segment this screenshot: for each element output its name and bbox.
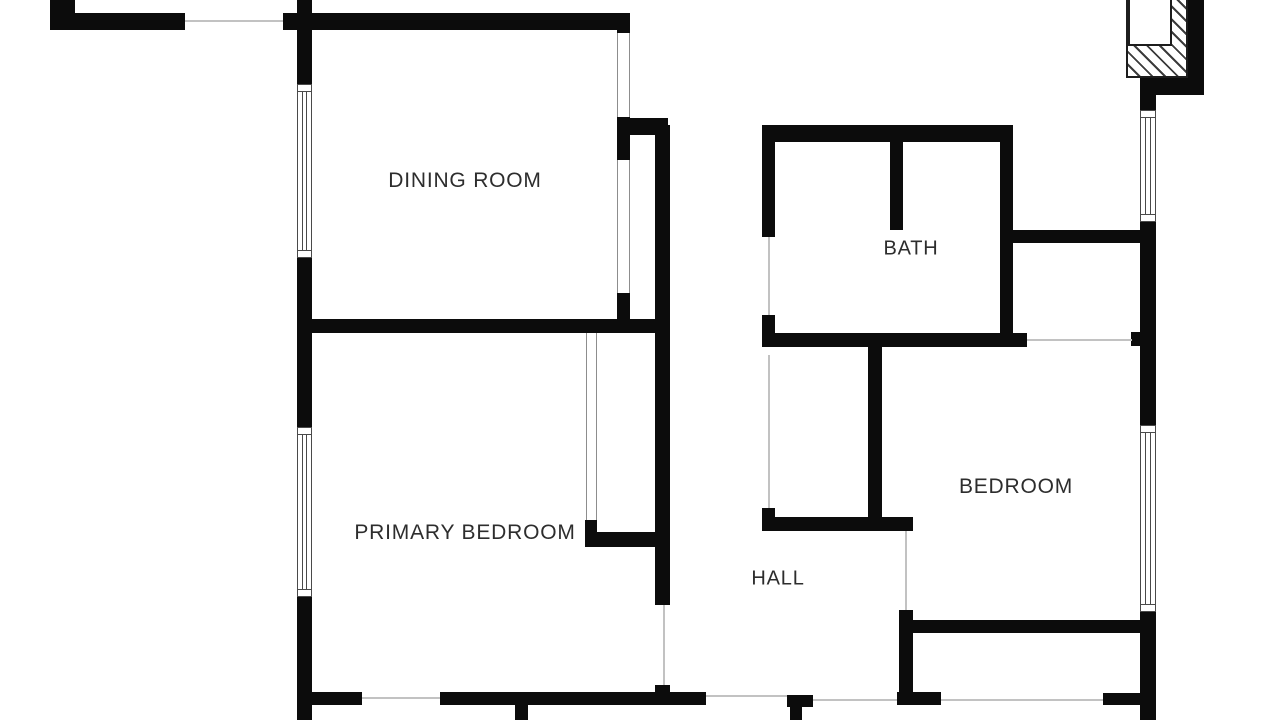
wall-segment (617, 117, 630, 160)
wall-segment (1140, 95, 1156, 110)
wall-segment (60, 13, 185, 30)
window-cap (1141, 604, 1155, 605)
wall-segment (762, 125, 775, 237)
wall-segment (762, 517, 913, 531)
opening-threshold-line (663, 605, 665, 685)
wall-segment (787, 695, 813, 707)
wall-segment (790, 707, 802, 720)
window-cap (298, 589, 311, 590)
wall-segment (1140, 222, 1156, 425)
wall-segment (868, 345, 882, 517)
window-pane (302, 435, 307, 589)
wall-segment (890, 135, 903, 230)
wall-segment (1103, 693, 1142, 705)
wall-segment (297, 319, 670, 333)
window-cap (1141, 117, 1155, 118)
wall-segment (283, 13, 630, 30)
room-label-hall: HALL (751, 568, 804, 591)
window-primary-left (297, 427, 312, 597)
wall-segment (585, 532, 670, 547)
room-label-bedroom: BEDROOM (959, 475, 1073, 499)
wall-opening (617, 33, 630, 117)
room-label-dining-room: DINING ROOM (388, 169, 541, 193)
fireplace-inset (1128, 0, 1172, 46)
window-cap (1141, 214, 1155, 215)
wall-segment (515, 703, 528, 720)
wall-segment (297, 257, 312, 427)
wall-segment (617, 13, 630, 33)
window-right-upper (1140, 110, 1156, 222)
opening-threshold-line (362, 697, 440, 699)
opening-threshold-line (813, 699, 897, 701)
window-dining-left (297, 84, 312, 258)
wall-opening (617, 160, 630, 293)
wall-segment (1140, 77, 1204, 95)
opening-threshold-line (706, 695, 787, 697)
wall-segment (897, 692, 941, 705)
window-cap (298, 91, 311, 92)
opening-threshold-line (1027, 339, 1132, 341)
opening-threshold-line (768, 237, 770, 315)
window-cap (298, 250, 311, 251)
wall-segment (617, 293, 630, 320)
wall-segment (310, 692, 362, 705)
window-pane (1145, 433, 1151, 604)
opening-threshold-line (905, 531, 907, 610)
wall-segment (762, 125, 1012, 142)
wall-segment (899, 620, 1155, 633)
opening-threshold-line (768, 355, 770, 508)
opening-threshold-line (941, 699, 1103, 701)
window-cap (298, 434, 311, 435)
wall-segment (1140, 612, 1156, 720)
wall-opening (586, 333, 597, 520)
window-pane (1145, 118, 1151, 214)
wall-segment (1131, 332, 1140, 346)
window-cap (1141, 432, 1155, 433)
window-pane (302, 92, 307, 250)
room-label-bath: BATH (883, 238, 938, 261)
wall-segment (1012, 230, 1140, 243)
wall-segment (762, 333, 1027, 347)
room-label-primary-bedroom: PRIMARY BEDROOM (354, 521, 575, 545)
opening-threshold-line (185, 20, 283, 22)
window-bedroom-right (1140, 425, 1156, 612)
wall-segment (440, 692, 706, 705)
floor-plan-canvas: DINING ROOMBATHPRIMARY BEDROOMBEDROOMHAL… (0, 0, 1280, 720)
